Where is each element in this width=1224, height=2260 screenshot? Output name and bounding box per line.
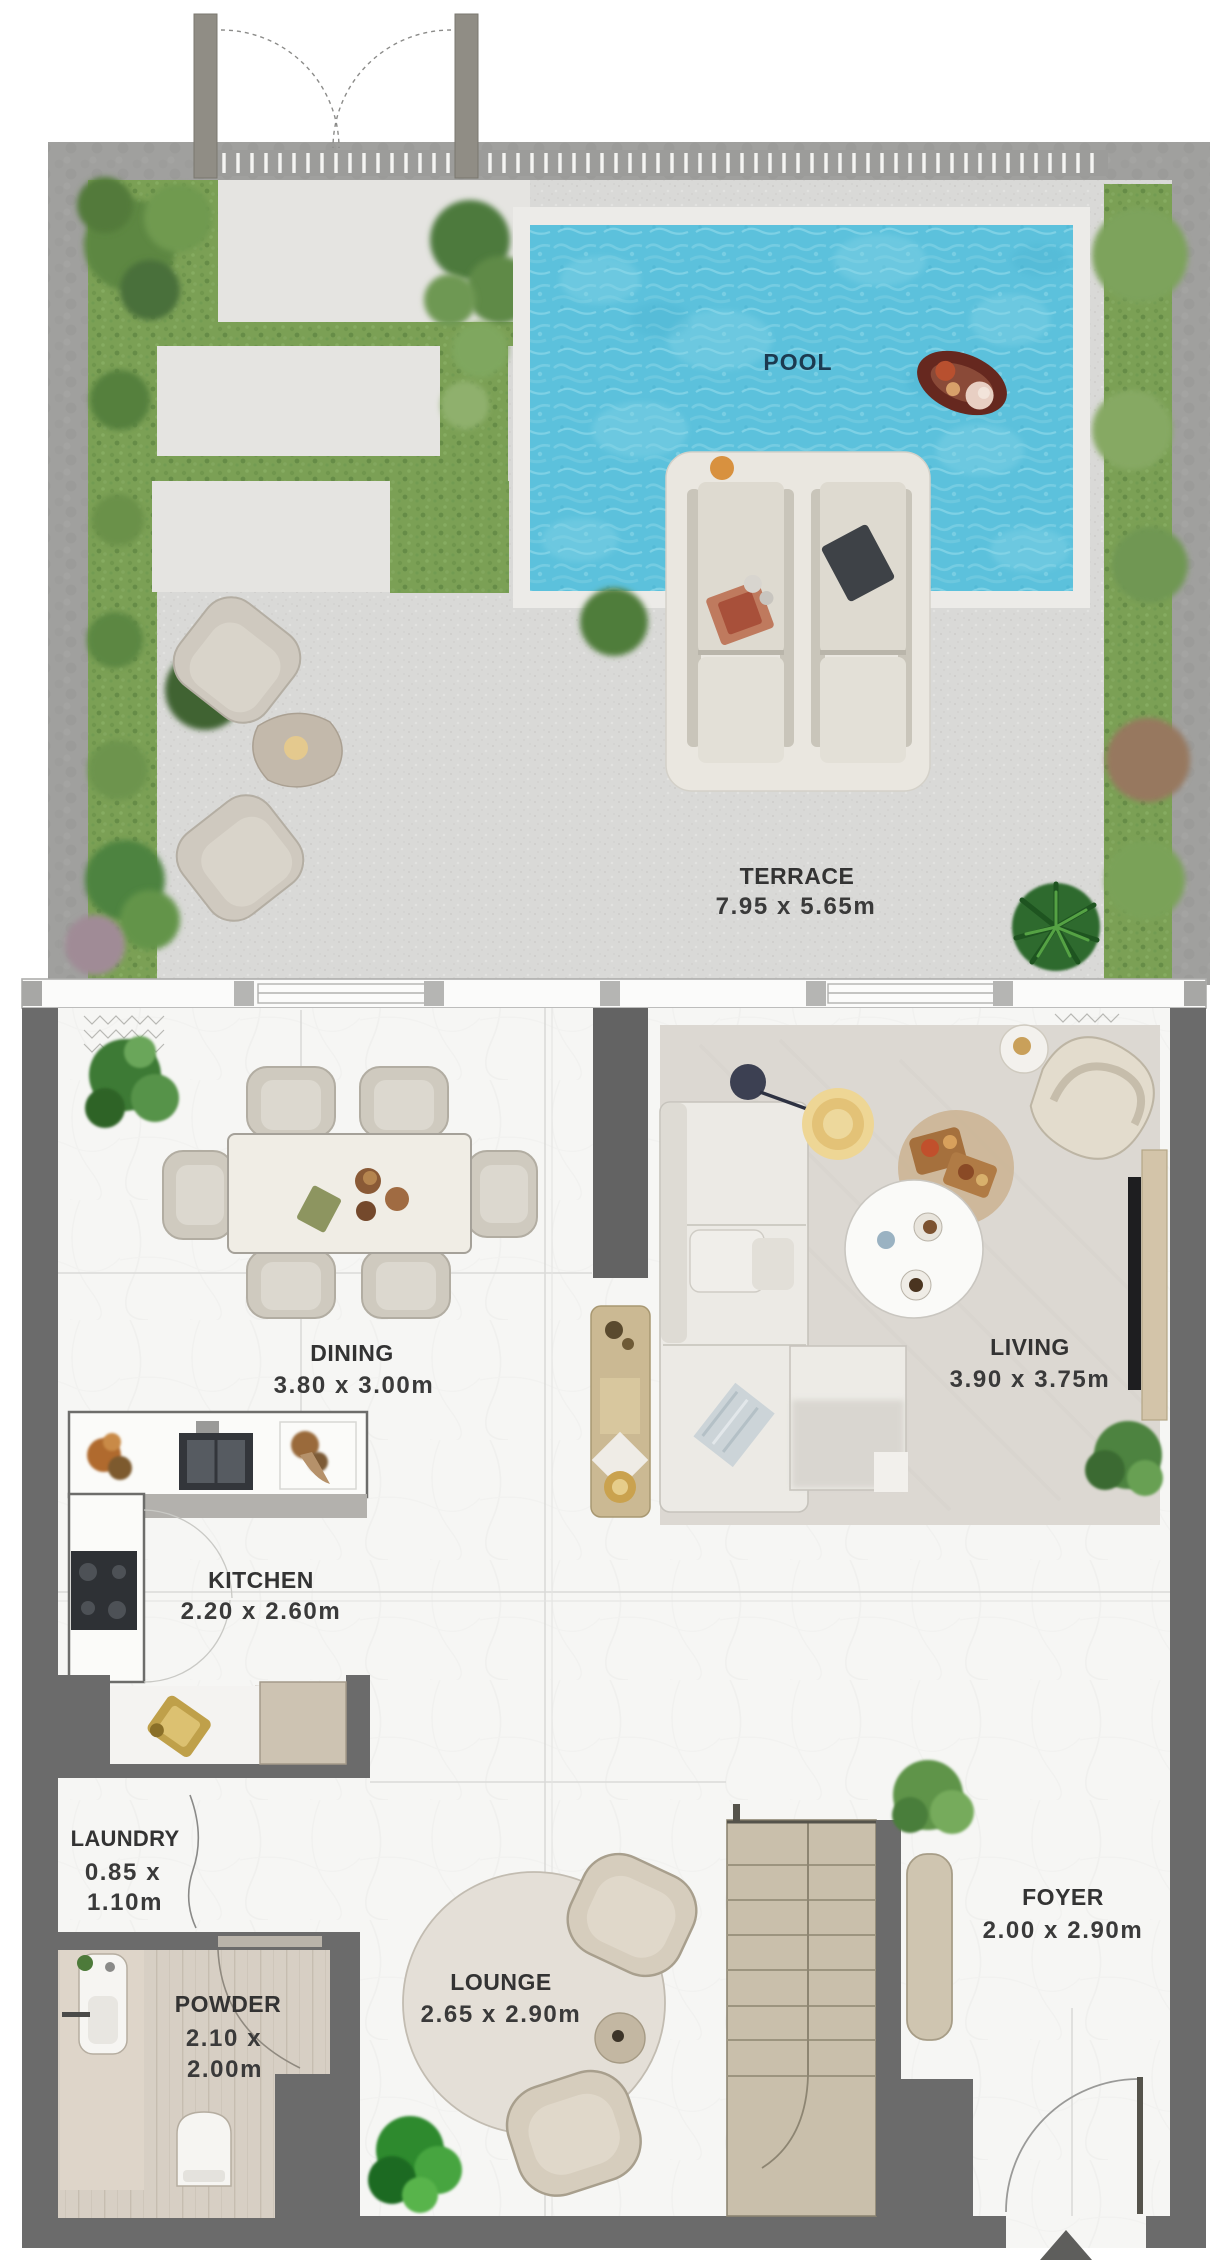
svg-text:DINING: DINING: [310, 1340, 394, 1366]
svg-text:2.65 x 2.90m: 2.65 x 2.90m: [421, 2001, 582, 2028]
svg-text:7.95 x 5.65m: 7.95 x 5.65m: [716, 893, 877, 920]
svg-text:1.10m: 1.10m: [87, 1889, 163, 1916]
svg-text:LIVING: LIVING: [990, 1334, 1070, 1360]
svg-text:TERRACE: TERRACE: [740, 863, 855, 889]
svg-text:2.20 x 2.60m: 2.20 x 2.60m: [181, 1598, 342, 1625]
svg-text:POOL: POOL: [763, 349, 832, 375]
svg-text:KITCHEN: KITCHEN: [208, 1567, 314, 1593]
svg-text:2.00m: 2.00m: [187, 2056, 263, 2083]
svg-text:LOUNGE: LOUNGE: [450, 1969, 551, 1995]
svg-text:0.85 x: 0.85 x: [85, 1859, 161, 1886]
svg-text:LAUNDRY: LAUNDRY: [71, 1826, 180, 1851]
svg-text:2.00 x 2.90m: 2.00 x 2.90m: [983, 1917, 1144, 1944]
svg-text:2.10 x: 2.10 x: [186, 2025, 262, 2052]
svg-text:FOYER: FOYER: [1022, 1884, 1104, 1910]
svg-text:3.90 x 3.75m: 3.90 x 3.75m: [950, 1366, 1111, 1393]
svg-text:POWDER: POWDER: [175, 1991, 282, 2017]
svg-text:3.80 x 3.00m: 3.80 x 3.00m: [274, 1372, 435, 1399]
